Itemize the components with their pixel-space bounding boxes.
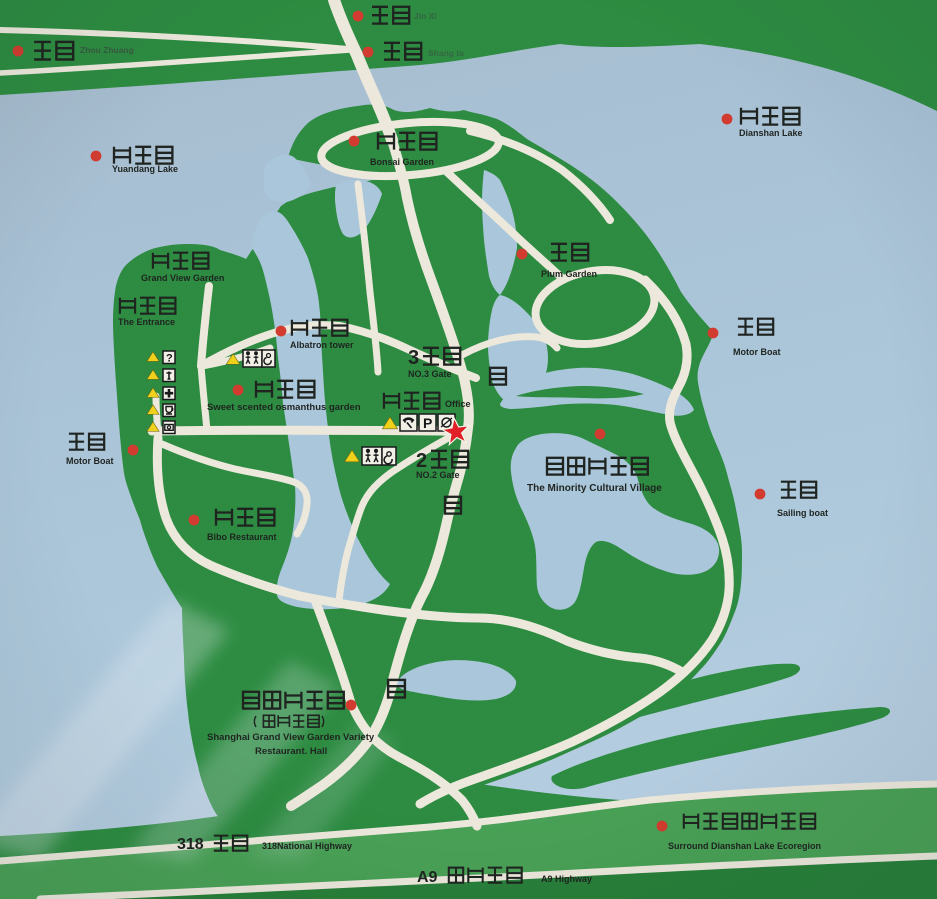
svg-text:Yuandang Lake: Yuandang Lake [112,164,178,174]
svg-text:3: 3 [408,347,419,369]
svg-text:Dianshan Lake: Dianshan Lake [739,128,803,138]
svg-text:Zhou Zhuang: Zhou Zhuang [80,45,134,55]
svg-text:Shang ta: Shang ta [428,48,464,58]
svg-text:Sweet scented osmanthus garden: Sweet scented osmanthus garden [207,402,361,413]
svg-text:Grand View Garden: Grand View Garden [141,273,224,283]
svg-text:Motor Boat: Motor Boat [733,347,781,357]
svg-text:NO.3 Gate: NO.3 Gate [408,369,452,379]
svg-text:Office: Office [445,399,471,409]
svg-text:The Minority Cultural Village: The Minority Cultural Village [527,483,662,494]
svg-text:A9 Highway: A9 Highway [541,874,592,884]
svg-text:Bibo Restaurant: Bibo Restaurant [207,532,277,542]
svg-text:318National Highway: 318National Highway [262,841,352,851]
svg-text:Shanghai Grand View Garden Var: Shanghai Grand View Garden Variety [207,732,375,743]
svg-text:Plum Garden: Plum Garden [541,269,597,279]
svg-text:?: ? [166,353,173,365]
svg-text:Jin Xi: Jin Xi [414,11,437,21]
svg-text:Sailing boat: Sailing boat [777,508,828,518]
svg-text:Bonsai Garden: Bonsai Garden [370,157,434,167]
svg-text:Surround Dianshan Lake Ecoregi: Surround Dianshan Lake Ecoregion [668,841,821,851]
svg-text:Restaurant. Hall: Restaurant. Hall [255,746,327,757]
svg-text:NO.2 Gate: NO.2 Gate [416,470,460,480]
svg-text:2: 2 [416,450,427,472]
svg-text:Albatron tower: Albatron tower [290,340,354,350]
svg-text:Motor Boat: Motor Boat [66,456,114,466]
svg-text:P: P [423,415,432,431]
svg-text:318: 318 [177,836,204,853]
svg-text:A9: A9 [417,869,438,886]
svg-text:The Entrance: The Entrance [118,317,175,327]
